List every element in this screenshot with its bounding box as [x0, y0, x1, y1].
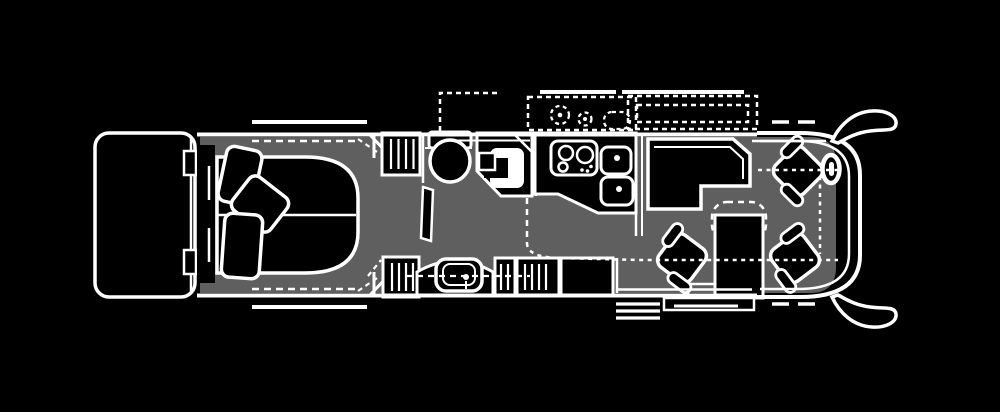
sink-drain-dot [614, 155, 620, 161]
cooktop-knob [589, 165, 593, 169]
floorplan-svg [0, 0, 1000, 412]
sink-drain-dot [616, 186, 622, 192]
entry-steps [614, 299, 662, 323]
toilet-bowl [430, 140, 470, 182]
rear-bumper [95, 133, 195, 297]
entry-platform [664, 298, 754, 310]
wall-notch-top [184, 151, 196, 175]
cooktop [551, 141, 597, 175]
cooktop-knob [586, 169, 590, 173]
pillow-3 [221, 213, 263, 279]
wall-notch-bottom [184, 250, 196, 274]
exterior-dashed-circle-dot [583, 117, 587, 121]
appliance [561, 258, 613, 295]
headboard-console [197, 145, 215, 283]
shower-seat [479, 153, 495, 170]
cooktop-knob [580, 168, 584, 172]
pocket-door [421, 187, 433, 241]
console-table [715, 215, 763, 298]
floorplan-canvas [0, 0, 1000, 412]
exterior-dashed-circle-dot [558, 113, 563, 118]
rear-cap [95, 133, 196, 297]
